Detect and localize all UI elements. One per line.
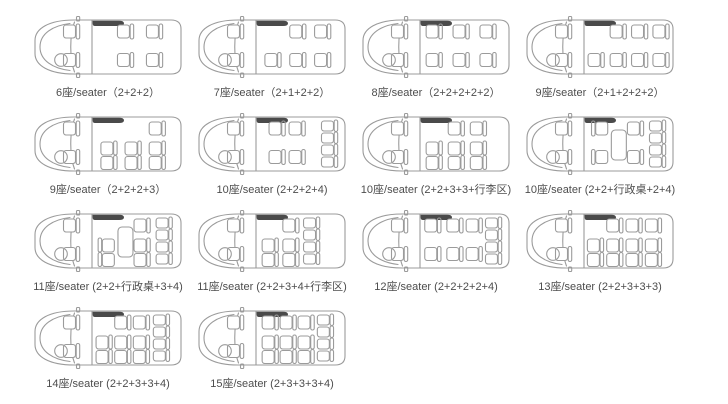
side-door-accent [93, 118, 124, 123]
van-label: 11座/seater (2+2+3+4+行李区) [197, 278, 347, 294]
van-diagram-9-seater: 9座/seater（2+2+2+3） [26, 113, 190, 197]
conference-table [118, 227, 133, 257]
van-diagram-7-seater: 7座/seater（2+1+2+2） [190, 16, 354, 100]
van-row-1: 6座/seater（2+2+2）7座/seater（2+1+2+2）8座/sea… [0, 16, 728, 113]
van-top-view [356, 113, 516, 177]
van-top-view [28, 307, 188, 371]
van-label: 11座/seater (2+2+行政桌+3+4) [33, 278, 183, 294]
van-diagram-11-seater: 11座/seater (2+2+行政桌+3+4) [26, 210, 190, 294]
van-row-2: 9座/seater（2+2+2+3）10座/seater (2+2+2+4)10… [0, 113, 728, 210]
van-label: 13座/seater (2+2+3+3+3) [538, 278, 662, 294]
van-diagram-13-seater: 13座/seater (2+2+3+3+3) [518, 210, 682, 294]
side-door-accent [93, 215, 124, 220]
van-top-view [192, 307, 352, 371]
van-label: 6座/seater（2+2+2） [56, 84, 160, 100]
van-top-view [28, 113, 188, 177]
van-top-view [192, 16, 352, 80]
van-row-3: 11座/seater (2+2+行政桌+3+4)11座/seater (2+2+… [0, 210, 728, 307]
van-label: 8座/seater（2+2+2+2+2） [371, 84, 500, 100]
van-diagram-9-seater: 9座/seater（2+1+2+2+2） [518, 16, 682, 100]
van-label: 14座/seater (2+2+3+3+4) [46, 375, 170, 391]
van-label: 10座/seater (2+2+3+3+行李区) [361, 181, 511, 197]
van-label: 9座/seater（2+2+2+3） [50, 181, 167, 197]
van-diagram-10-seater: 10座/seater (2+2+行政桌+2+4) [518, 113, 682, 197]
side-door-accent [421, 118, 452, 123]
van-label: 15座/seater (2+3+3+3+4) [210, 375, 334, 391]
seating-layout-grid: 6座/seater（2+2+2）7座/seater（2+1+2+2）8座/sea… [0, 0, 728, 402]
van-top-view [520, 16, 680, 80]
van-diagram-11-seater: 11座/seater (2+2+3+4+行李区) [190, 210, 354, 294]
van-top-view [356, 210, 516, 274]
van-label: 9座/seater（2+1+2+2+2） [535, 84, 664, 100]
van-diagram-15-seater: 15座/seater (2+3+3+3+4) [190, 307, 354, 391]
van-diagram-8-seater: 8座/seater（2+2+2+2+2） [354, 16, 518, 100]
van-label: 10座/seater (2+2+2+4) [217, 181, 328, 197]
van-diagram-14-seater: 14座/seater (2+2+3+3+4) [26, 307, 190, 391]
van-top-view [520, 113, 680, 177]
van-top-view [192, 113, 352, 177]
van-top-view [520, 210, 680, 274]
van-diagram-12-seater: 12座/seater (2+2+2+2+4) [354, 210, 518, 294]
van-diagram-10-seater: 10座/seater (2+2+3+3+行李区) [354, 113, 518, 197]
van-label: 7座/seater（2+1+2+2） [214, 84, 331, 100]
van-label: 10座/seater (2+2+行政桌+2+4) [525, 181, 675, 197]
van-top-view [28, 16, 188, 80]
conference-table [611, 130, 626, 160]
van-top-view [192, 210, 352, 274]
van-diagram-10-seater: 10座/seater (2+2+2+4) [190, 113, 354, 197]
side-door-accent [257, 21, 288, 26]
van-row-4: 14座/seater (2+2+3+3+4)15座/seater (2+3+3+… [0, 307, 728, 404]
van-label: 12座/seater (2+2+2+2+4) [374, 278, 498, 294]
van-top-view [356, 16, 516, 80]
van-diagram-6-seater: 6座/seater（2+2+2） [26, 16, 190, 100]
van-top-view [28, 210, 188, 274]
